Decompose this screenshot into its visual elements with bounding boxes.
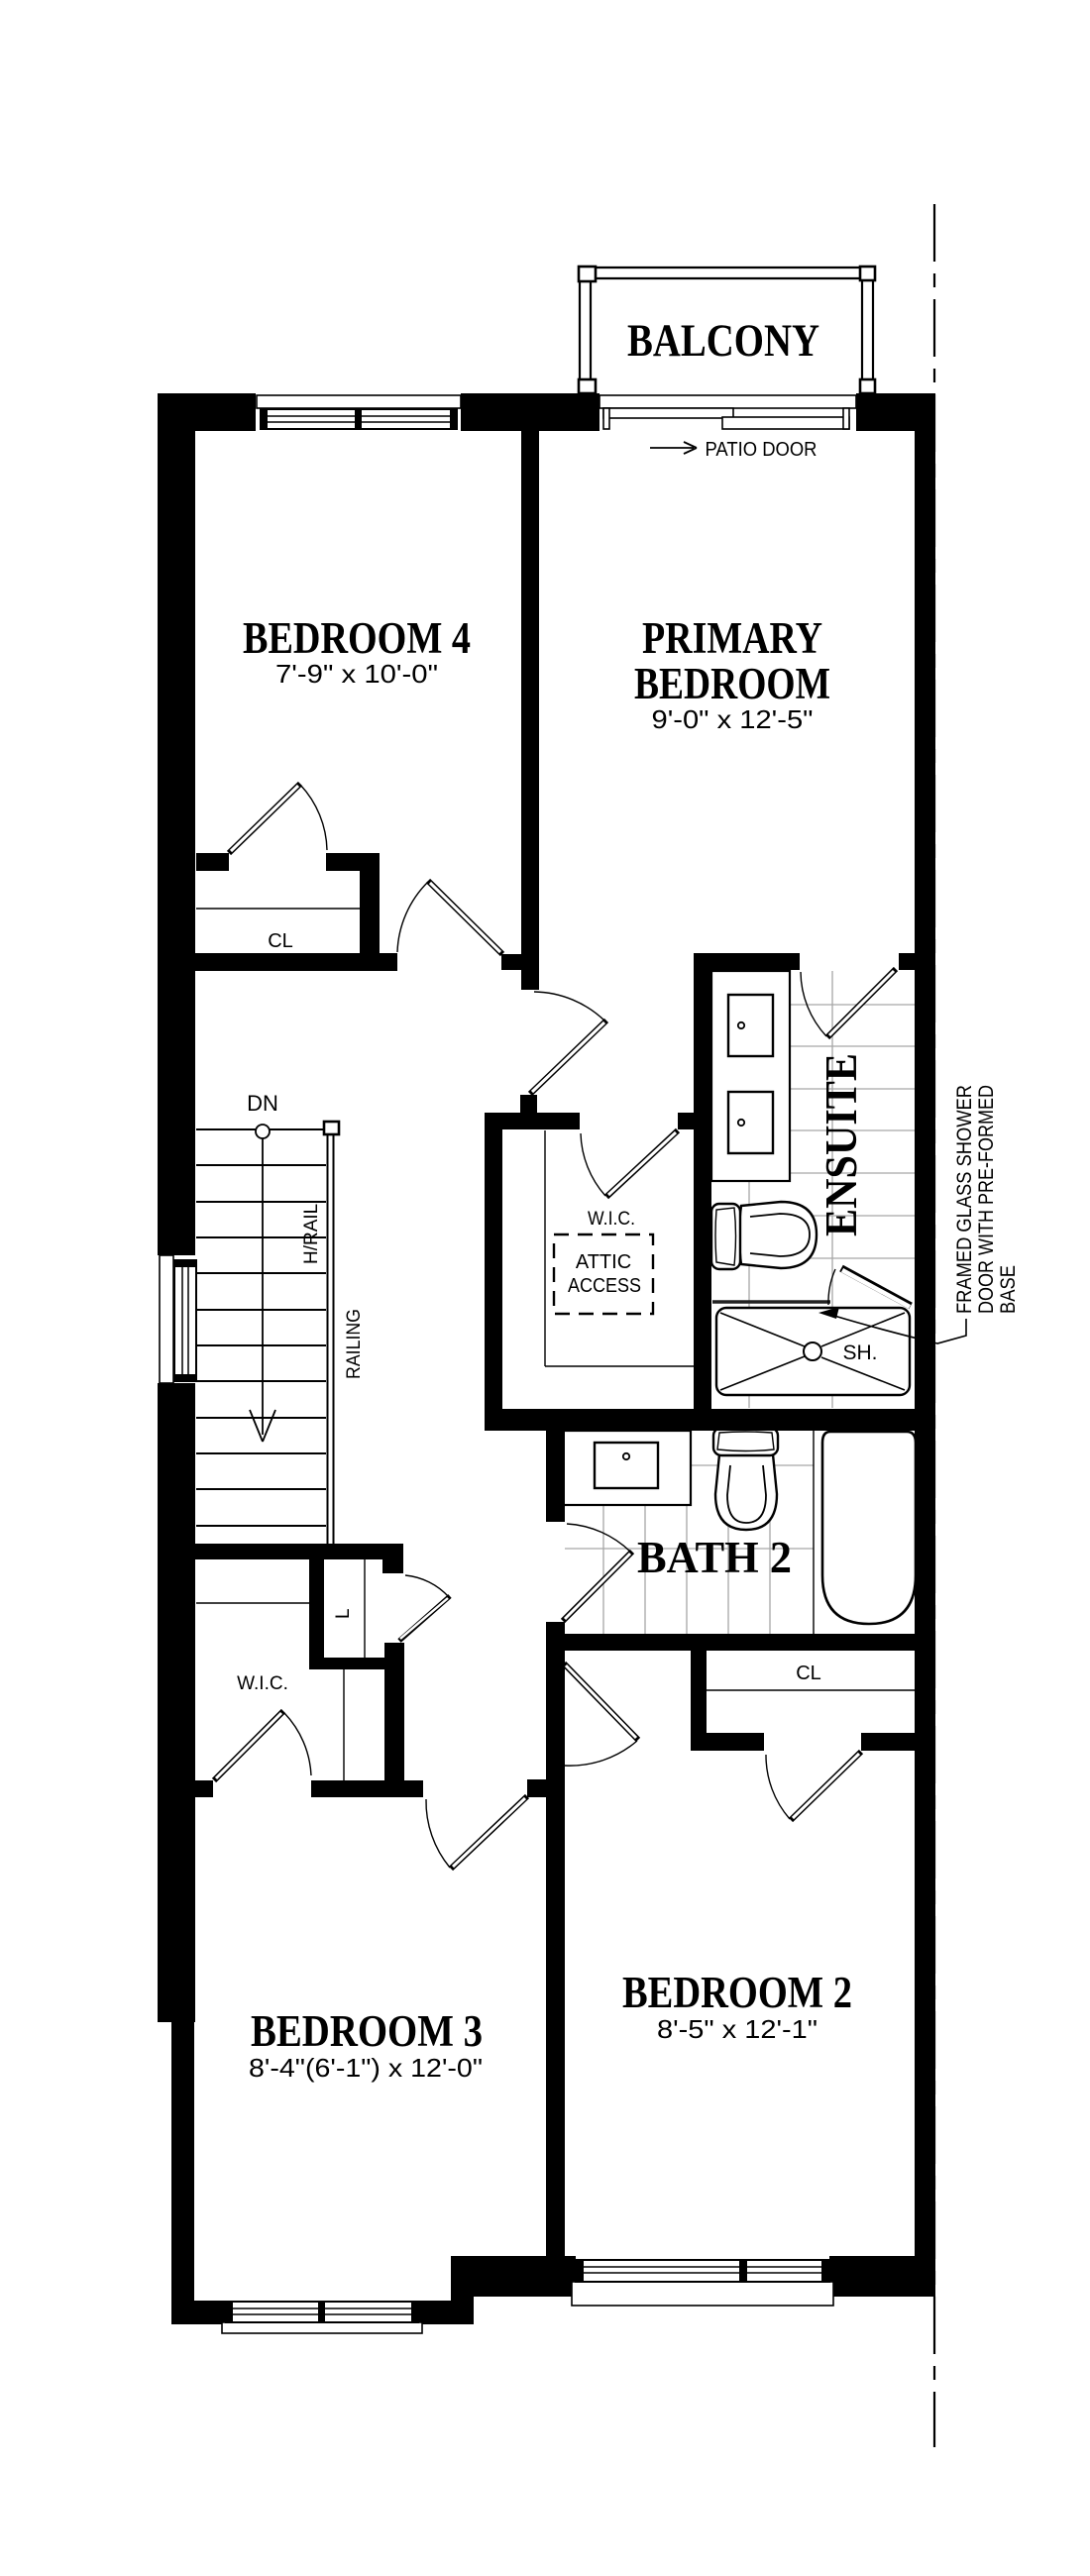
svg-text:7'-9" x 10'-0": 7'-9" x 10'-0" bbox=[275, 659, 438, 689]
svg-text:BEDROOM 2: BEDROOM 2 bbox=[622, 1968, 852, 2017]
svg-text:SH.: SH. bbox=[842, 1342, 877, 1364]
svg-text:FRAMED GLASS SHOWER: FRAMED GLASS SHOWER bbox=[953, 1085, 976, 1314]
svg-text:BASE: BASE bbox=[997, 1265, 1020, 1314]
svg-text:PATIO DOOR: PATIO DOOR bbox=[706, 439, 817, 461]
svg-text:DOOR WITH PRE-FORMED: DOOR WITH PRE-FORMED bbox=[975, 1085, 998, 1314]
svg-text:ATTIC: ATTIC bbox=[576, 1251, 631, 1273]
svg-text:PRIMARY: PRIMARY bbox=[642, 613, 822, 663]
svg-text:BALCONY: BALCONY bbox=[627, 315, 819, 367]
svg-text:W.I.C.: W.I.C. bbox=[237, 1673, 288, 1694]
svg-text:9'-0" x 12'-5": 9'-0" x 12'-5" bbox=[652, 704, 814, 734]
svg-text:W.I.C.: W.I.C. bbox=[588, 1209, 635, 1230]
svg-text:ACCESS: ACCESS bbox=[568, 1275, 641, 1297]
svg-text:BEDROOM: BEDROOM bbox=[634, 659, 830, 708]
svg-text:CL: CL bbox=[268, 930, 293, 952]
svg-text:H/RAIL: H/RAIL bbox=[301, 1204, 322, 1264]
svg-text:ENSUITE: ENSUITE bbox=[816, 1053, 866, 1236]
svg-text:DN: DN bbox=[247, 1091, 278, 1116]
svg-text:L: L bbox=[333, 1608, 354, 1619]
svg-text:BEDROOM 3: BEDROOM 3 bbox=[251, 2006, 483, 2056]
svg-text:8'-4"(6'-1") x 12'-0": 8'-4"(6'-1") x 12'-0" bbox=[249, 2053, 483, 2083]
svg-text:CL: CL bbox=[796, 1663, 821, 1684]
svg-text:8'-5" x 12'-1": 8'-5" x 12'-1" bbox=[657, 2014, 817, 2044]
svg-text:RAILING: RAILING bbox=[344, 1309, 365, 1379]
svg-text:BATH 2: BATH 2 bbox=[637, 1533, 792, 1582]
svg-text:BEDROOM 4: BEDROOM 4 bbox=[243, 613, 471, 663]
